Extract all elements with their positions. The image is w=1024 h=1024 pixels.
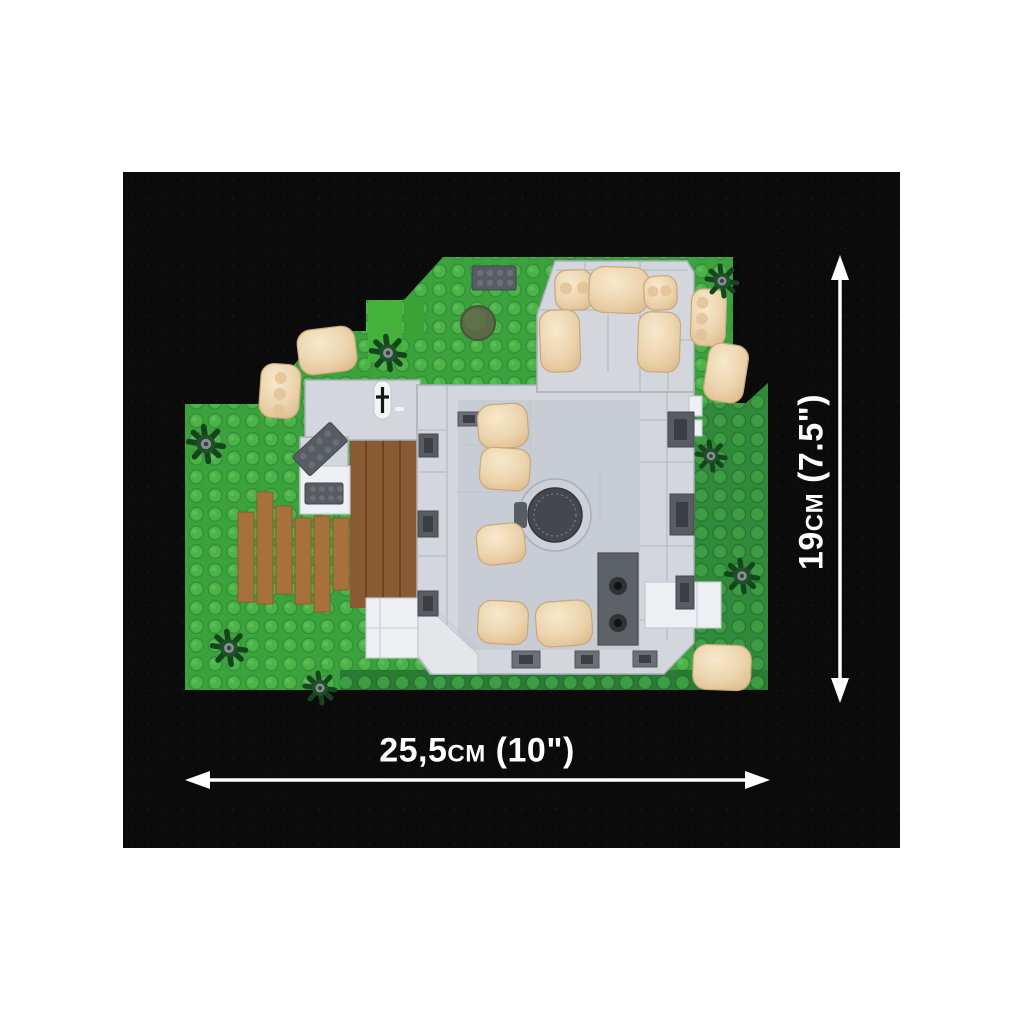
dark-plate-west [305, 483, 343, 504]
grass-hill-brick-small [404, 299, 424, 335]
hole-block [598, 553, 638, 645]
dark-brick-top [472, 266, 516, 290]
dark-backdrop: 25,5cm (10") 19cm (7.5") [123, 172, 900, 848]
width-dimension-arrow [185, 771, 770, 789]
width-dimension-label: 25,5cm (10") [379, 732, 575, 771]
olive-cylinder [461, 306, 495, 340]
bottom-edge-clips [512, 651, 657, 668]
height-dimension-arrow [831, 255, 849, 703]
height-dimension-label: 19cm (7.5") [793, 394, 832, 570]
